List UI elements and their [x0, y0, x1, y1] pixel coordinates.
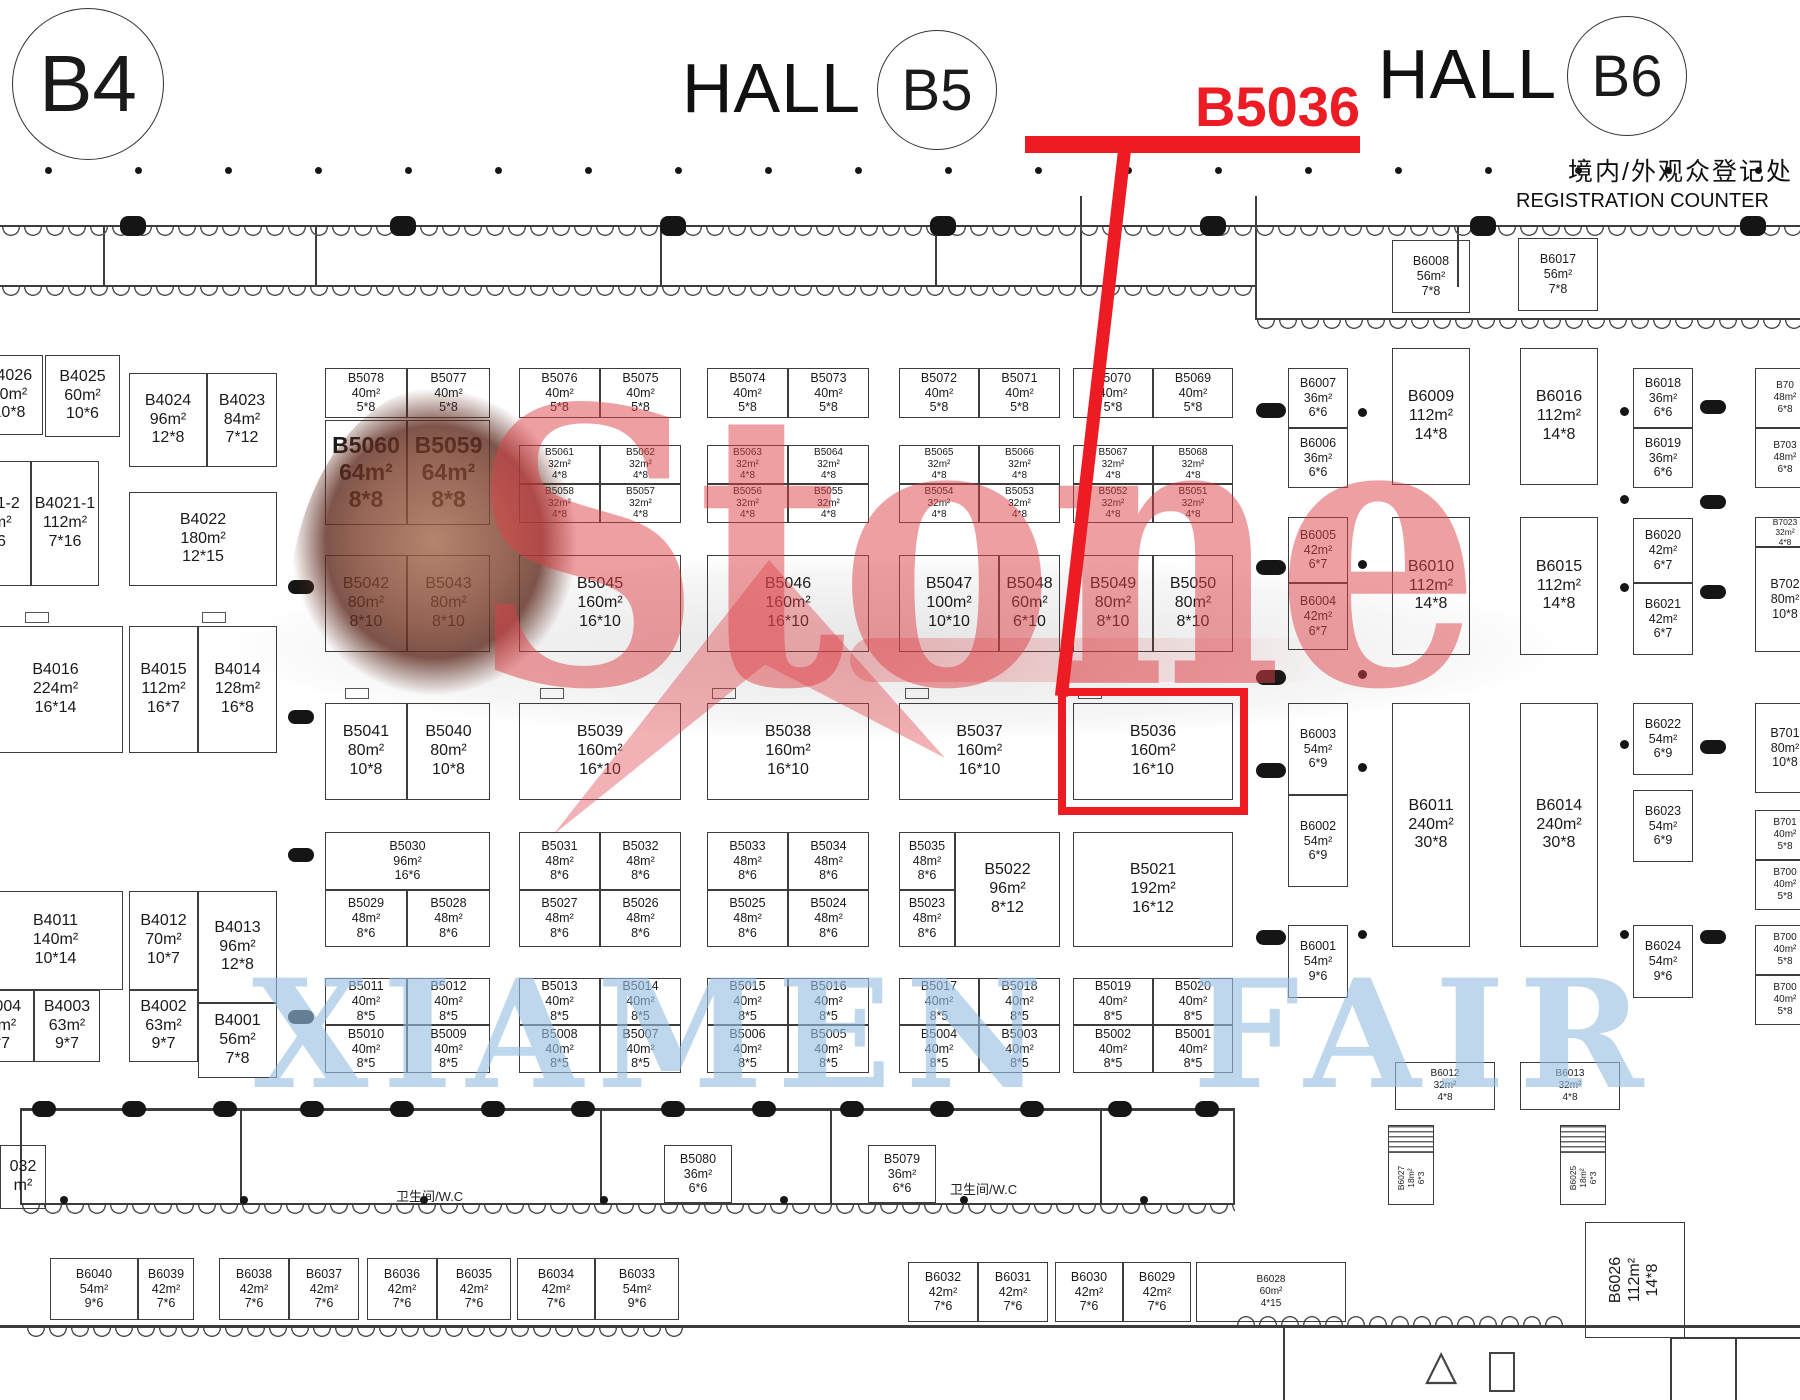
wc-label-left: 卫生间/W.C [396, 1186, 463, 1205]
hall-b5-title: HALL [682, 48, 861, 128]
hall-b5-badge: B5 [877, 30, 997, 150]
registration-counter-label-en: REGISTRATION COUNTER [1516, 190, 1769, 213]
hall-b5-badge-label: B5 [902, 57, 973, 124]
hall-b4-badge-label: B4 [39, 38, 137, 130]
hall-b6-badge: B6 [1567, 16, 1687, 136]
escalator-triangle-symbol: △ [1425, 1340, 1457, 1389]
hall-b6-title: HALL [1378, 34, 1557, 114]
hall-b6-badge-label: B6 [1592, 43, 1663, 110]
wc-label-right: 卫生间/W.C [950, 1179, 1017, 1198]
escalator-rect-symbol [1489, 1352, 1515, 1392]
registration-counter-label-cn: 境内/外观众登记处 [1568, 152, 1793, 188]
hall-b4-badge: B4 [12, 8, 164, 160]
